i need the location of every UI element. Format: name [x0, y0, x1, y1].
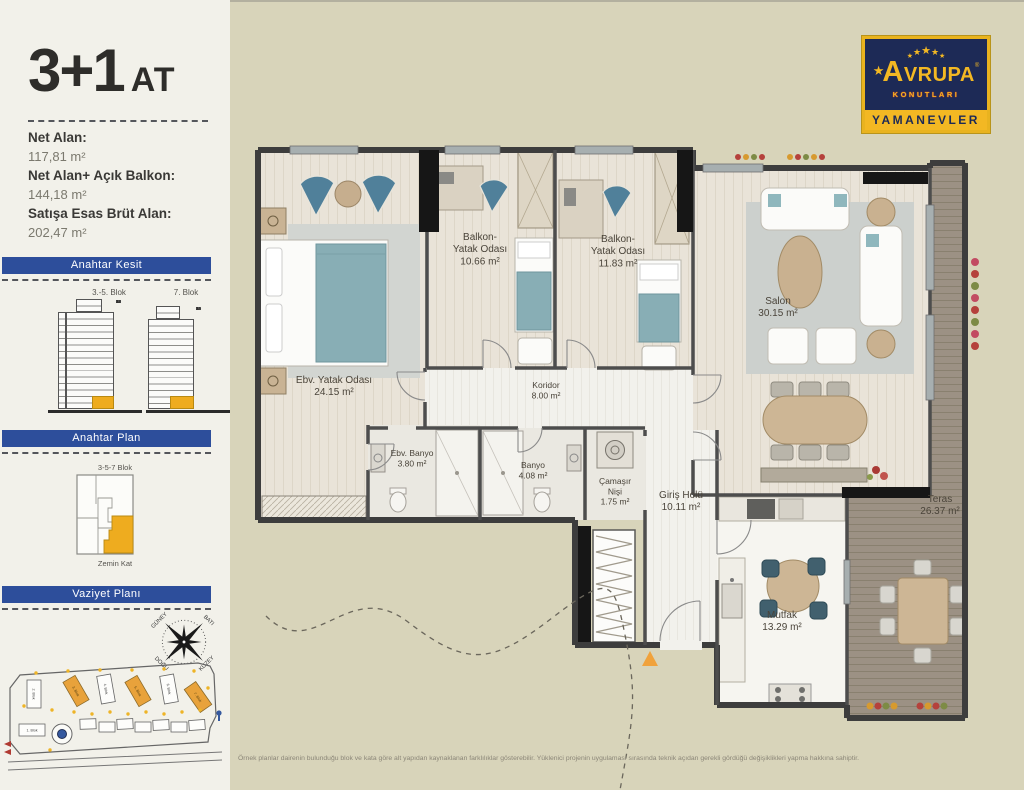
section-anahtar-kesit: Anahtar Kesit	[2, 257, 211, 274]
site-block-3: 3. Blok	[63, 675, 89, 706]
ground-line	[146, 410, 230, 413]
key-plan	[76, 474, 134, 556]
divider	[2, 279, 211, 281]
room-label-mutfak: Mutfak13.29 m²	[762, 610, 802, 633]
brochure-page: 3+1 AT Net Alan: 117,81 m² Net Alan+ Açı…	[0, 0, 1024, 790]
room-label-giris-holu: Giriş Holü10.11 m²	[659, 490, 703, 513]
keyplan-block-label: 3-5-7 Blok	[60, 463, 170, 472]
entrance-arrow-icon	[642, 651, 658, 666]
page-title: 3+1 AT	[28, 36, 176, 105]
stat-label: Net Alan+ Açık Balkon:	[28, 167, 213, 185]
site-block-1: 1. Blok	[19, 724, 45, 736]
stat-value: 144,18 m²	[28, 185, 213, 204]
unit-type-suffix: AT	[131, 61, 176, 100]
section-vaziyet-plani: Vaziyet Planı	[2, 586, 211, 603]
room-giris-holu	[645, 430, 717, 645]
section-anahtar-plan: Anahtar Plan	[2, 430, 211, 447]
site-low-blocks	[80, 719, 205, 732]
floor-plan: Ebv. Yatak Odası24.15 m² Balkon-Yatak Od…	[230, 0, 1024, 790]
site-marker-blue	[216, 710, 221, 721]
site-plan: 2. Blok 3. Blok 4. Blok 5. Blok 6. Blok …	[2, 658, 226, 786]
stat-label: Net Alan:	[28, 129, 213, 147]
compass-ne-label: BATI	[202, 614, 215, 627]
entrance-opening	[660, 640, 702, 650]
compass-nw-label: GÜNEY	[150, 611, 169, 630]
stat-label: Satışa Esas Brüt Alan:	[28, 205, 213, 223]
svg-text:2. Blok: 2. Blok	[32, 689, 36, 700]
footer-disclaimer: Örnek planlar dairenin bulunduğu blok ve…	[238, 755, 978, 762]
keyplan-floor-label: Zemin Kat	[60, 559, 170, 568]
divider	[28, 120, 208, 122]
divider	[2, 452, 211, 454]
sidebar: 3+1 AT Net Alan: 117,81 m² Net Alan+ Açı…	[0, 0, 230, 790]
room-label-koridor: Koridor8.00 m²	[532, 380, 561, 400]
area-stats: Net Alan: 117,81 m² Net Alan+ Açık Balko…	[28, 129, 213, 243]
site-block-7: 7. Blok	[184, 682, 212, 713]
site-block-4: 4. Blok	[97, 674, 116, 704]
site-block-6: 6. Blok	[160, 674, 179, 704]
highlighted-floor	[170, 396, 194, 409]
svg-text:1. Blok: 1. Blok	[27, 729, 38, 733]
site-entrance-markers	[4, 741, 11, 755]
stat-value: 202,47 m²	[28, 223, 213, 242]
elevation-block-label: 7. Blok	[136, 288, 236, 297]
stat-value: 117,81 m²	[28, 147, 213, 166]
site-block-2: 2. Blok	[27, 680, 41, 708]
highlighted-floor	[92, 396, 114, 409]
entry-closet	[575, 526, 635, 644]
unit-type: 3+1	[28, 36, 124, 105]
ground-line	[48, 410, 142, 413]
room-label-banyo: Banyo4.08 m²	[519, 460, 548, 480]
site-block-5: 5. Blok	[125, 675, 151, 706]
site-trees	[22, 667, 209, 751]
